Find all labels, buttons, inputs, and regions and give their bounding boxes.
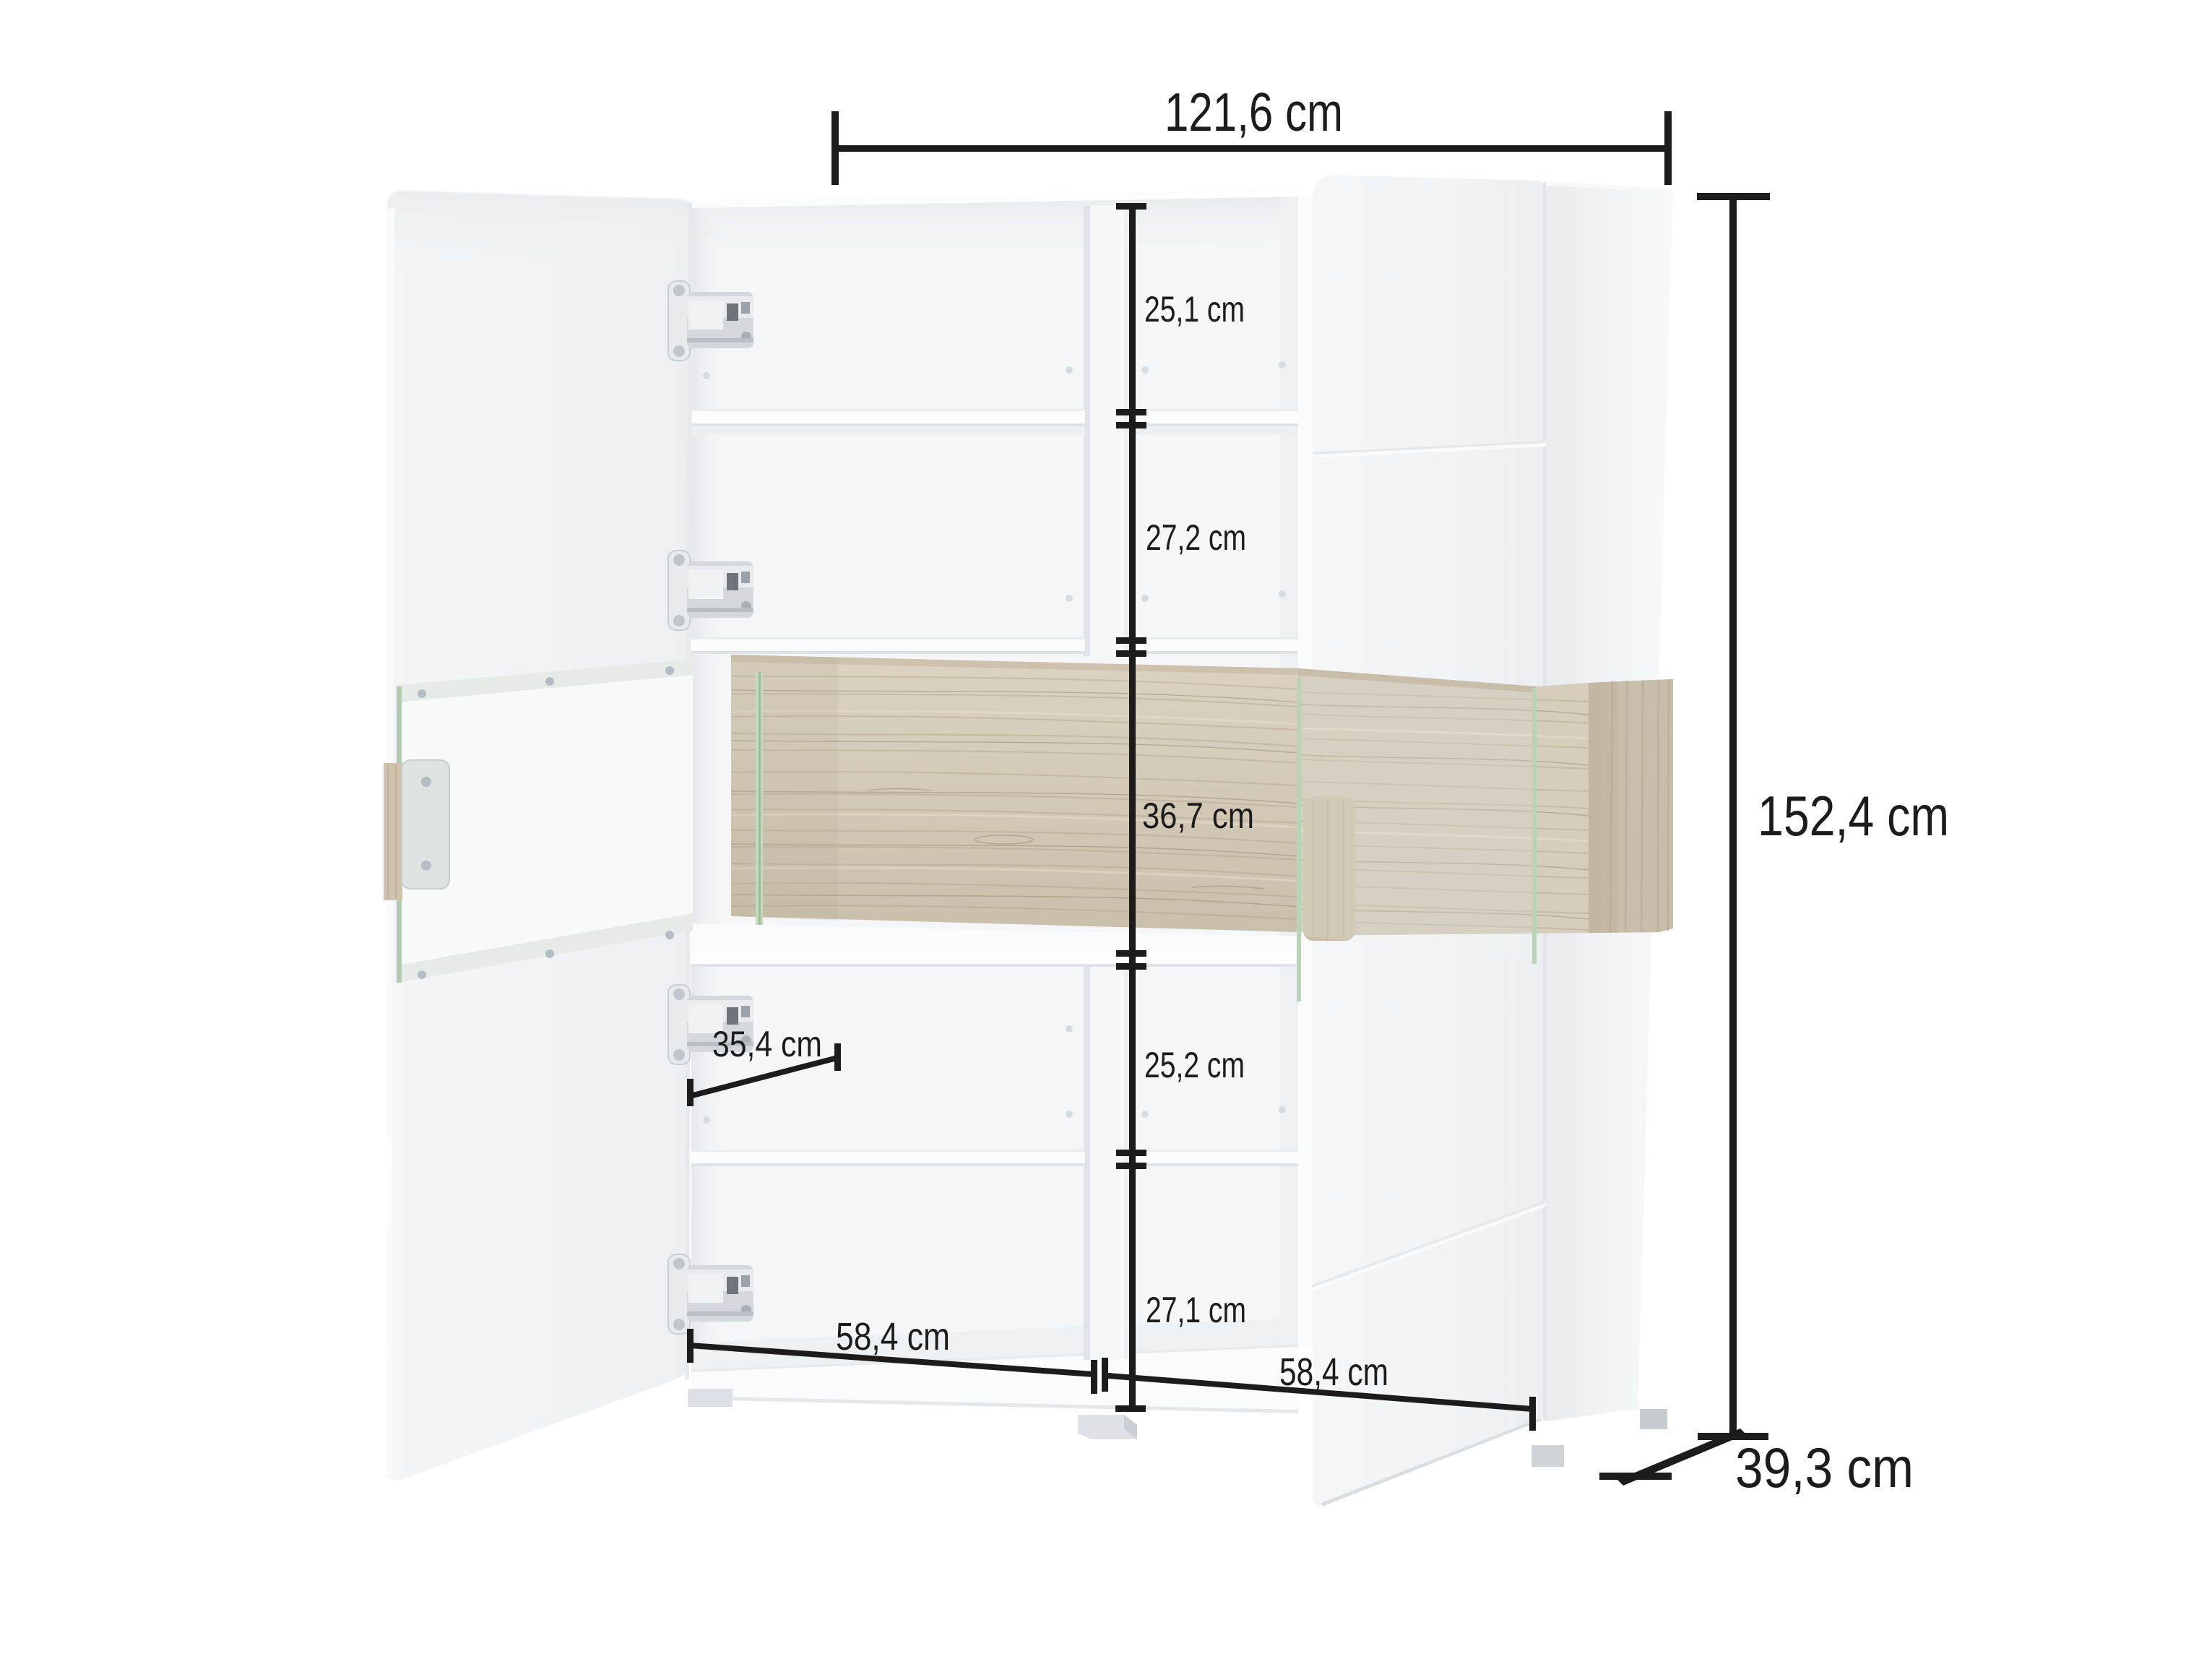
svg-text:121,6 cm: 121,6 cm: [1165, 82, 1343, 142]
svg-text:35,4 cm: 35,4 cm: [712, 1024, 822, 1064]
svg-text:152,4 cm: 152,4 cm: [1758, 784, 1949, 848]
svg-text:27,1 cm: 27,1 cm: [1146, 1290, 1246, 1330]
svg-text:39,3 cm: 39,3 cm: [1735, 1436, 1914, 1499]
svg-text:58,4 cm: 58,4 cm: [836, 1315, 950, 1358]
svg-text:25,2 cm: 25,2 cm: [1144, 1045, 1245, 1085]
svg-text:25,1 cm: 25,1 cm: [1144, 289, 1245, 329]
svg-text:27,2 cm: 27,2 cm: [1146, 517, 1246, 558]
svg-text:58,4 cm: 58,4 cm: [1279, 1350, 1388, 1394]
svg-text:36,7 cm: 36,7 cm: [1142, 796, 1254, 836]
